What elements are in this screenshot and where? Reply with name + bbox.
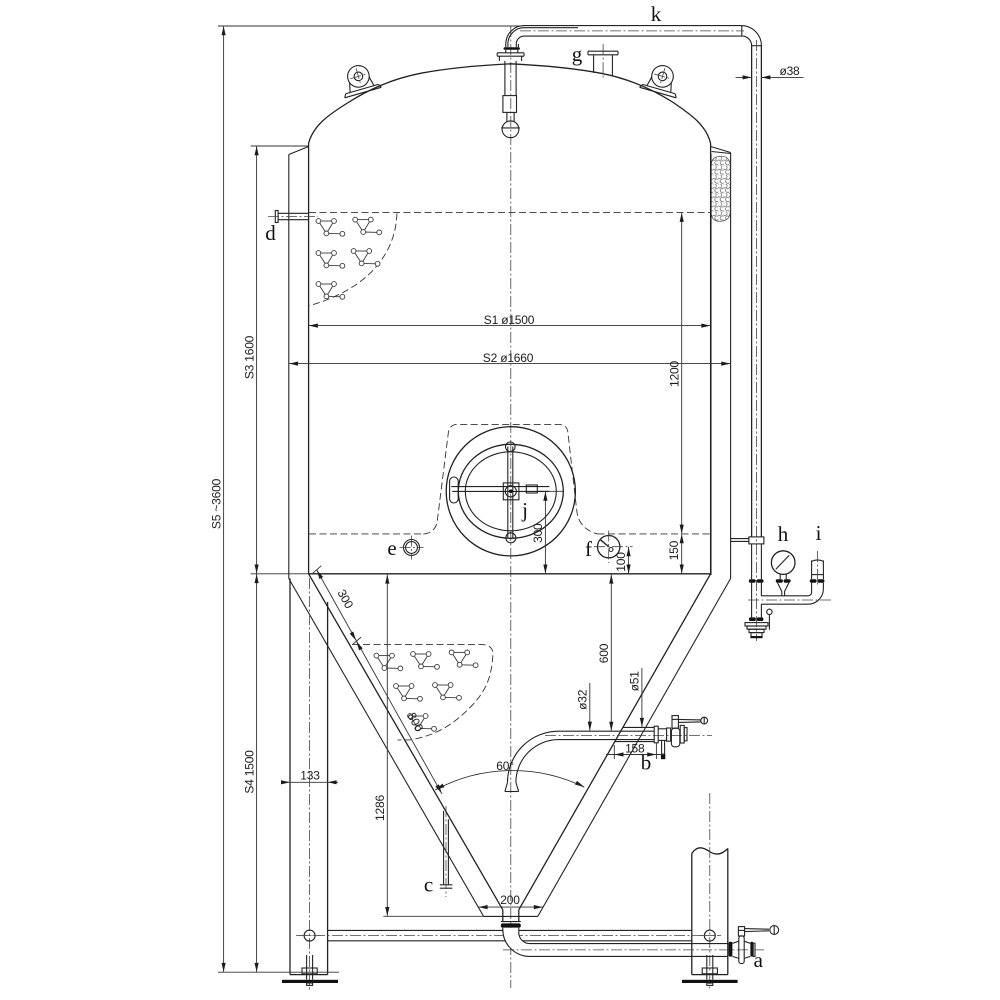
svg-text:600: 600	[597, 643, 611, 663]
svg-text:200: 200	[500, 893, 520, 907]
svg-text:f: f	[585, 537, 592, 561]
svg-text:100: 100	[614, 552, 628, 572]
svg-text:e: e	[387, 536, 396, 560]
svg-text:a: a	[754, 948, 764, 972]
svg-text:ø38: ø38	[779, 64, 800, 78]
svg-text:i: i	[816, 521, 822, 545]
svg-text:j: j	[521, 498, 528, 522]
svg-text:S3 1600: S3 1600	[243, 335, 257, 379]
svg-text:k: k	[651, 2, 662, 26]
svg-text:h: h	[778, 522, 789, 546]
svg-text:133: 133	[300, 768, 320, 782]
svg-text:S5 ~3600: S5 ~3600	[210, 478, 224, 529]
svg-text:300: 300	[531, 523, 545, 543]
svg-text:c: c	[424, 873, 433, 897]
svg-text:b: b	[641, 751, 652, 775]
svg-text:150: 150	[667, 540, 681, 560]
svg-text:ø32: ø32	[575, 689, 589, 710]
svg-text:S1 ø1500: S1 ø1500	[484, 313, 535, 327]
svg-text:d: d	[265, 221, 276, 245]
svg-text:1286: 1286	[373, 795, 387, 821]
svg-text:1200: 1200	[668, 361, 682, 387]
svg-text:S4 1500: S4 1500	[243, 750, 257, 794]
svg-text:60°: 60°	[496, 759, 514, 773]
svg-text:g: g	[572, 42, 583, 66]
svg-text:ø51: ø51	[628, 671, 642, 692]
svg-text:S2 ø1660: S2 ø1660	[483, 351, 534, 365]
